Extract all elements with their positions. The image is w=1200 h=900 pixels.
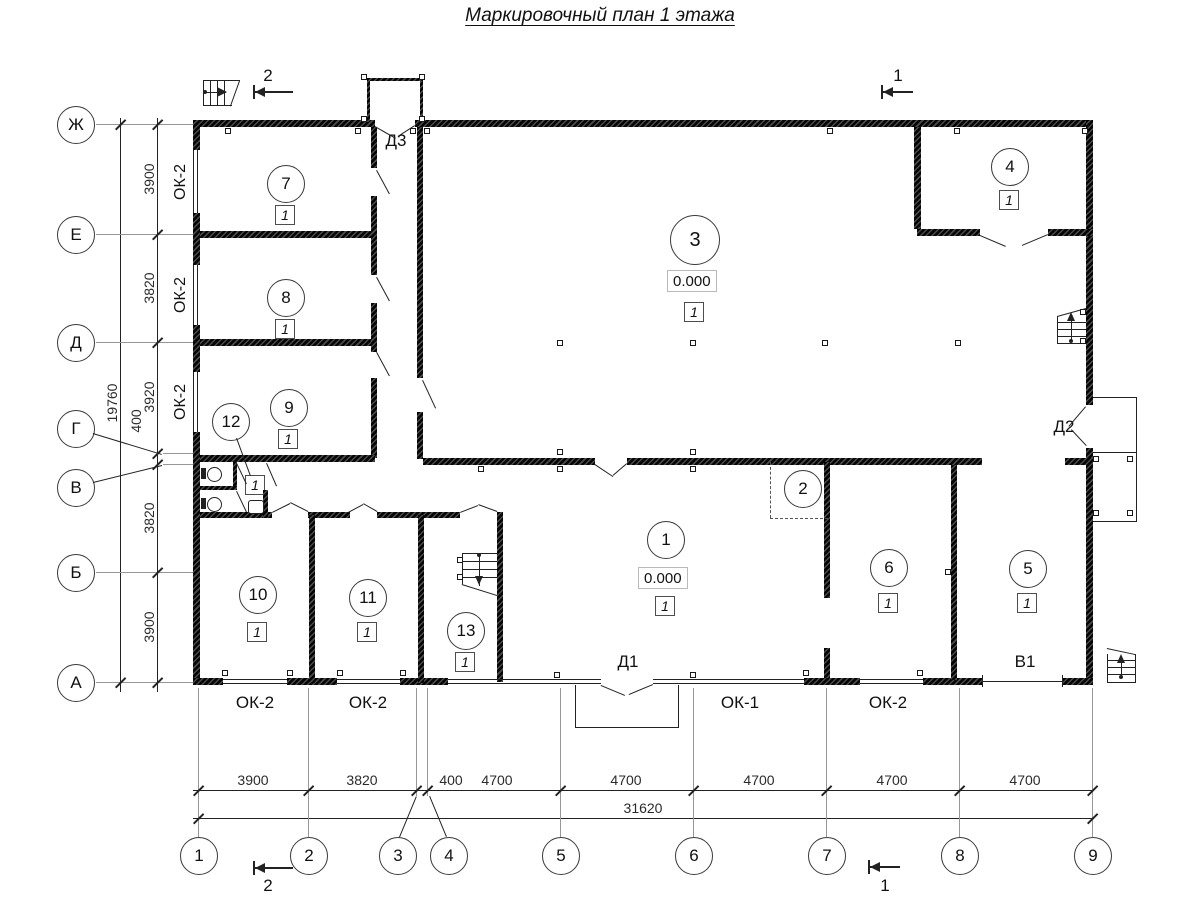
- grid-line: [198, 688, 199, 837]
- wall-segment: [417, 127, 423, 378]
- section-arrow: [870, 862, 880, 872]
- room-category: 1: [999, 190, 1019, 210]
- line: [93, 433, 162, 455]
- window-label: ОК-2: [172, 277, 190, 313]
- stair-direction-arrow: [475, 576, 483, 585]
- axis-circle-bottom: 4: [430, 837, 468, 875]
- room-category: 1: [1017, 593, 1037, 613]
- line: [197, 150, 198, 213]
- window-label: ОК-1: [721, 693, 759, 713]
- section-arrow: [255, 87, 265, 97]
- column-marker: [690, 466, 696, 472]
- wall-segment: [1063, 678, 1093, 685]
- axis-circle-bottom: 8: [941, 837, 979, 875]
- axis-circle-bottom: 7: [808, 837, 846, 875]
- column-marker: [1082, 128, 1088, 134]
- line: [612, 463, 627, 476]
- room-number: 2: [784, 470, 822, 508]
- grid-line: [96, 234, 193, 235]
- wall-segment: [371, 303, 377, 352]
- line: [422, 380, 436, 408]
- dim-bottom: 4700: [876, 772, 907, 788]
- wall-segment: [200, 455, 375, 462]
- wall-segment: [415, 120, 1093, 127]
- column-marker: [355, 128, 361, 134]
- section-mark-label: 2: [263, 66, 272, 86]
- room-number: 5: [1009, 550, 1047, 588]
- wall-segment: [914, 127, 921, 229]
- room-category: 1: [655, 596, 675, 616]
- line: [230, 81, 240, 106]
- grid-line: [1092, 688, 1093, 837]
- line: [197, 372, 198, 432]
- axis-circle-left: Д: [57, 324, 95, 362]
- room-category: 1: [278, 429, 298, 449]
- column-marker: [222, 670, 228, 676]
- sink: [248, 500, 264, 514]
- line: [448, 683, 601, 684]
- line: [429, 796, 447, 837]
- wall-segment: [193, 120, 375, 127]
- grid-line: [96, 342, 193, 343]
- column-marker: [917, 670, 923, 676]
- wall-segment: [1048, 229, 1093, 236]
- dim-left: 400: [128, 409, 144, 432]
- wall-segment: [200, 231, 371, 238]
- line: [1136, 397, 1137, 522]
- grid-line: [96, 682, 193, 683]
- column-marker: [361, 116, 367, 122]
- line: [1022, 234, 1048, 246]
- wc-tank: [201, 468, 206, 479]
- wall-segment: [418, 515, 424, 683]
- line: [653, 683, 804, 684]
- line: [1107, 654, 1108, 682]
- window-label: ОК-2: [869, 693, 907, 713]
- column-marker: [1127, 456, 1133, 462]
- dim-bottom: 3900: [237, 772, 268, 788]
- line: [399, 796, 417, 837]
- dim-bottom: 3820: [346, 772, 377, 788]
- column-marker: [424, 128, 430, 134]
- room-category: 1: [357, 622, 377, 642]
- line: [337, 679, 400, 680]
- grid-line: [96, 124, 193, 125]
- wall-segment: [951, 465, 957, 680]
- axis-circle-bottom: 6: [675, 837, 713, 875]
- grid-line: [560, 688, 561, 837]
- line: [193, 818, 1093, 819]
- room-number: 1: [647, 521, 685, 559]
- column-marker: [457, 574, 463, 580]
- column-marker: [690, 340, 696, 346]
- window-label: ОК-2: [349, 693, 387, 713]
- section-arrow: [883, 87, 893, 97]
- stair-arrow-dot: [1119, 675, 1123, 679]
- line: [980, 235, 1006, 247]
- grid-line: [163, 464, 193, 465]
- axis-circle-left: Е: [57, 216, 95, 254]
- line: [1135, 654, 1136, 682]
- wc-tank: [201, 498, 206, 509]
- column-marker: [287, 670, 293, 676]
- line: [678, 685, 679, 727]
- wall-segment: [193, 678, 223, 685]
- room-number: 12: [212, 403, 250, 441]
- elevation-mark: 0.000: [638, 567, 688, 589]
- line: [266, 463, 277, 486]
- axis-circle-bottom: 5: [542, 837, 580, 875]
- dim-left: 3820: [141, 272, 157, 303]
- line: [272, 503, 290, 513]
- floor-plan-canvas: Маркировочный план 1 этажа Ж Е Д Г В Б А…: [0, 0, 1200, 900]
- section-arrow: [255, 863, 265, 873]
- wall-segment: [371, 378, 377, 458]
- line: [193, 265, 194, 325]
- line: [376, 170, 390, 194]
- room-category: 1: [878, 593, 898, 613]
- axis-circle-left: А: [57, 664, 95, 702]
- room-number: 6: [870, 549, 908, 587]
- wall-segment: [371, 127, 377, 168]
- line: [982, 675, 983, 687]
- axis-circle-bottom: 2: [290, 837, 328, 875]
- grid-line: [826, 688, 827, 837]
- wall-segment: [193, 120, 200, 150]
- wall-segment: [309, 515, 315, 683]
- line: [376, 277, 390, 301]
- room-category: 1: [247, 622, 267, 642]
- dim-bottom: 4700: [743, 772, 774, 788]
- line: [1093, 521, 1137, 522]
- axis-circle-bottom: 1: [180, 837, 218, 875]
- column-marker: [803, 670, 809, 676]
- dim-left: 3900: [141, 163, 157, 194]
- wall-segment: [367, 78, 423, 81]
- door-label: Д2: [1054, 417, 1075, 437]
- column-marker: [557, 340, 563, 346]
- room-number: 3: [670, 215, 720, 265]
- window-label: ОК-2: [172, 164, 190, 200]
- wall-segment: [1086, 120, 1093, 405]
- wc-bowl: [207, 467, 222, 482]
- column-marker: [690, 449, 696, 455]
- column-marker: [419, 74, 425, 80]
- wall-segment: [193, 432, 200, 685]
- section-mark-label: 1: [880, 876, 889, 896]
- wall-segment: [193, 325, 200, 372]
- gate-label: В1: [1015, 652, 1036, 672]
- stair-direction-arrow: [1067, 312, 1075, 321]
- line: [460, 505, 478, 513]
- line: [210, 80, 211, 106]
- wall-segment: [917, 229, 980, 236]
- section-mark-label: 1: [893, 66, 902, 86]
- line: [157, 118, 158, 692]
- wall-segment: [824, 462, 830, 598]
- line: [223, 683, 287, 684]
- room-number: 8: [267, 279, 305, 317]
- column-marker: [955, 340, 961, 346]
- wall-segment: [367, 78, 370, 122]
- line: [1071, 429, 1087, 446]
- window-label: ОК-2: [236, 693, 274, 713]
- column-marker: [690, 672, 696, 678]
- wall-segment: [200, 339, 371, 346]
- column-marker: [225, 128, 231, 134]
- stair-arrow-dot: [203, 90, 207, 94]
- door-label: Д1: [618, 652, 639, 672]
- column-marker: [410, 128, 416, 134]
- column-marker: [557, 449, 563, 455]
- dim-bottom: 400: [439, 772, 462, 788]
- wall-segment: [193, 213, 200, 265]
- room-number: 11: [349, 579, 387, 617]
- elevation-mark: 0.000: [667, 270, 717, 292]
- line: [290, 502, 308, 512]
- room-number: 13: [447, 612, 485, 650]
- line: [376, 352, 390, 376]
- column-marker: [361, 74, 367, 80]
- wc-bowl: [207, 497, 222, 512]
- column-marker: [337, 670, 343, 676]
- column-marker: [557, 466, 563, 472]
- room-number: 9: [270, 389, 308, 427]
- grid-line: [96, 572, 193, 573]
- line: [594, 464, 613, 477]
- column-marker: [822, 340, 828, 346]
- wall-segment: [371, 196, 377, 275]
- column-marker: [1080, 338, 1086, 344]
- wall-segment: [627, 458, 982, 465]
- dashed-line: [770, 462, 771, 518]
- line: [601, 685, 625, 696]
- room-category: 1: [684, 302, 704, 322]
- stair-direction-arrow: [1117, 654, 1125, 663]
- dim-bottom: 4700: [481, 772, 512, 788]
- line: [860, 683, 923, 684]
- line: [337, 683, 400, 684]
- column-marker: [1093, 510, 1099, 516]
- wall-segment: [423, 458, 595, 465]
- room-number: 10: [239, 576, 277, 614]
- dim-left: 3920: [141, 381, 157, 412]
- wall-segment: [200, 486, 237, 490]
- column-marker: [419, 116, 425, 122]
- line: [629, 684, 653, 695]
- column-marker: [1080, 309, 1086, 315]
- dim-bottom: 4700: [1009, 772, 1040, 788]
- wall-segment: [804, 678, 860, 685]
- axis-circle-left: Б: [57, 554, 95, 592]
- dim-bottom: 4700: [610, 772, 641, 788]
- line: [120, 118, 121, 692]
- window-label: ОК-2: [172, 384, 190, 420]
- column-marker: [827, 128, 833, 134]
- line: [197, 265, 198, 325]
- column-marker: [478, 466, 484, 472]
- column-marker: [1127, 510, 1133, 516]
- dim-left-total: 19760: [104, 384, 120, 423]
- dim-left: 3900: [141, 611, 157, 642]
- line: [363, 503, 377, 512]
- line: [1093, 397, 1137, 398]
- line: [1107, 682, 1136, 683]
- grid-line: [416, 688, 417, 796]
- room-number: 4: [991, 148, 1029, 186]
- page-title: Маркировочный план 1 этажа: [465, 5, 735, 27]
- axis-circle-bottom: 9: [1074, 837, 1112, 875]
- line: [448, 679, 601, 680]
- line: [653, 679, 804, 680]
- grid-line: [693, 688, 694, 837]
- line: [860, 679, 923, 680]
- line: [193, 150, 194, 213]
- wall-segment: [497, 512, 503, 682]
- grid-line: [308, 688, 309, 837]
- line: [1093, 452, 1137, 453]
- axis-circle-left: Ж: [57, 106, 95, 144]
- axis-circle-left: Г: [57, 410, 95, 448]
- line: [348, 504, 363, 513]
- room-category: 1: [455, 652, 475, 672]
- line: [982, 681, 1063, 682]
- room-category: 1: [245, 475, 265, 495]
- wall-segment: [400, 678, 448, 685]
- line: [223, 679, 287, 680]
- line: [575, 727, 679, 728]
- line: [478, 504, 497, 512]
- line: [1062, 675, 1063, 687]
- wall-segment: [824, 648, 830, 678]
- grid-line: [163, 453, 193, 454]
- stair-direction-arrow: [217, 87, 227, 97]
- room-number: 7: [267, 165, 305, 203]
- grid-line: [959, 688, 960, 837]
- dim-left: 3820: [141, 502, 157, 533]
- section-mark-label: 2: [263, 876, 272, 896]
- line: [193, 372, 194, 432]
- column-marker: [400, 670, 406, 676]
- column-marker: [954, 128, 960, 134]
- room-category: 1: [275, 205, 295, 225]
- wall-segment: [417, 412, 423, 459]
- wall-segment: [1086, 448, 1093, 685]
- grid-line: [427, 688, 428, 796]
- axis-circle-left: В: [57, 469, 95, 507]
- stair-arrow-dot: [477, 553, 481, 557]
- room-category: 1: [275, 319, 295, 339]
- column-marker: [554, 672, 560, 678]
- stair-arrow-dot: [1069, 339, 1073, 343]
- column-marker: [457, 557, 463, 563]
- dashed-line: [770, 518, 828, 519]
- column-marker: [945, 569, 951, 575]
- axis-circle-bottom: 3: [379, 837, 417, 875]
- dim-bottom-total: 31620: [624, 800, 663, 816]
- wall-segment: [1065, 458, 1093, 465]
- line: [575, 685, 576, 727]
- line: [203, 80, 240, 81]
- column-marker: [1093, 456, 1099, 462]
